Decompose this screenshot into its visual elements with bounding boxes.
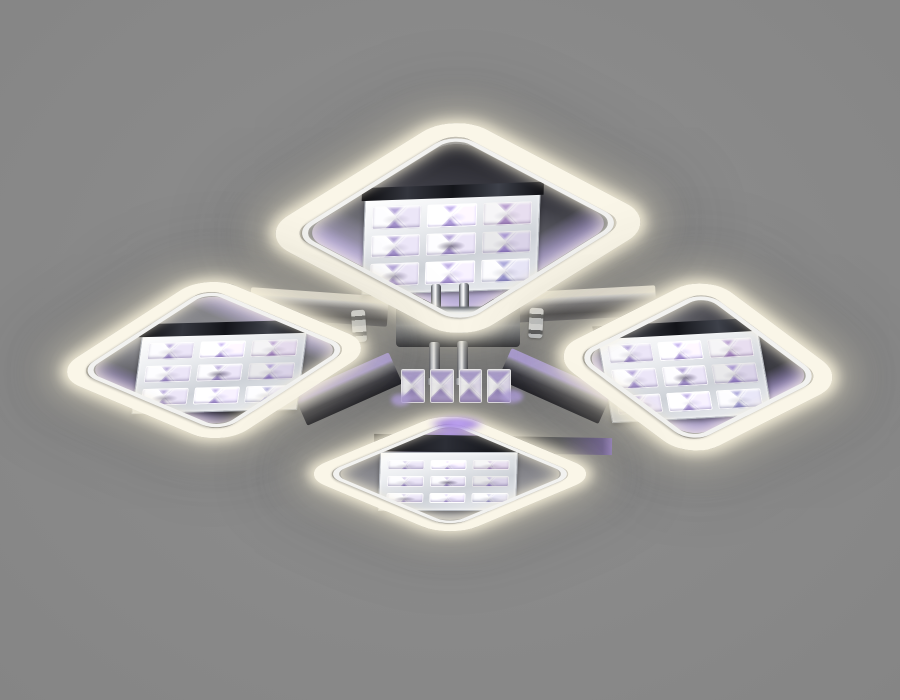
center-crystal-cluster <box>401 369 511 403</box>
product-photo-stage <box>0 0 900 700</box>
purple-accent-right <box>501 390 523 403</box>
chrome-clip-right <box>528 308 544 339</box>
crystal-cell <box>459 369 483 403</box>
crystal-cell <box>430 369 454 403</box>
purple-accent-left <box>391 394 410 406</box>
purple-glow-core <box>440 418 476 429</box>
